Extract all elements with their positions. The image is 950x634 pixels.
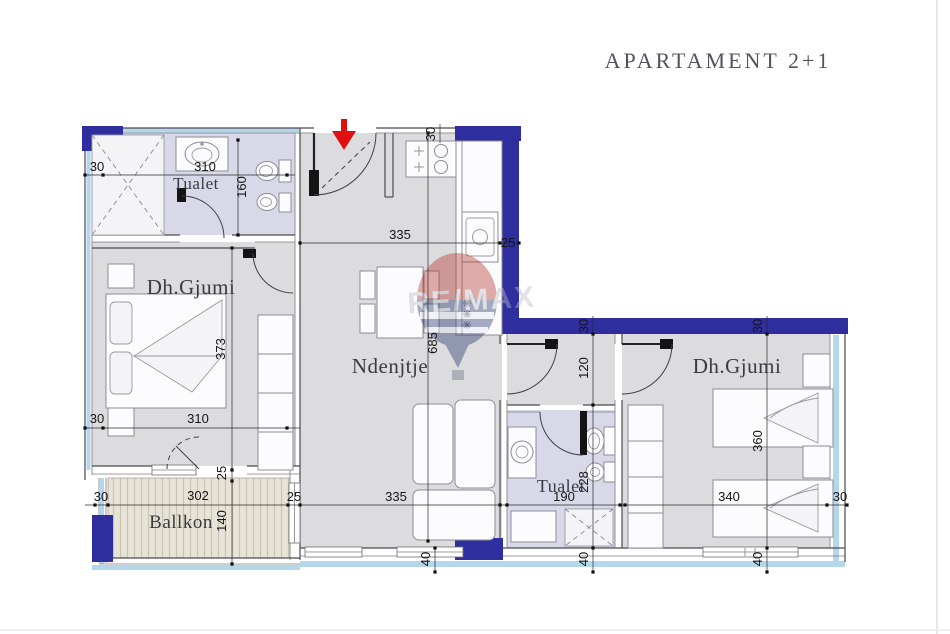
dim-kitchen-width: 335 <box>389 227 411 242</box>
dim-bedleft-height: 373 <box>213 338 228 360</box>
window-living-bottom-1 <box>305 547 362 557</box>
dim-bedleft-width: 310 <box>187 411 209 426</box>
dim-kitchen-wall: 25 <box>501 235 515 250</box>
dim-bedright-width: 340 <box>718 489 740 504</box>
watermark-text: RE/MAX <box>407 281 537 321</box>
dim-bath-wall-bottom: 40 <box>576 552 591 566</box>
window-bedroom-left-balcony <box>152 465 196 475</box>
dim-balcony-height: 140 <box>214 510 229 532</box>
dim-entry-wall: 30 <box>423 127 438 141</box>
bath-cabinet <box>511 511 556 542</box>
wardrobe-left <box>258 315 293 470</box>
dim-living-width: 335 <box>385 489 407 504</box>
dim-living-wall-bottom: 40 <box>418 552 433 566</box>
window-band-top <box>123 129 299 133</box>
dim-bedright-wall-bottom: 40 <box>750 552 765 566</box>
dim-tualet-height: 160 <box>234 176 249 198</box>
dim-bedright-wall-right: 30 <box>833 489 847 504</box>
dim-hall-wall-top: 30 <box>576 319 591 333</box>
dim-balcony-width: 302 <box>187 488 209 503</box>
toilet-icon-bottom <box>584 427 615 455</box>
wardrobe-right <box>628 405 663 548</box>
navy-wall-horizontal <box>502 318 848 334</box>
room-label-bedroom-left: Dh.Gjumi <box>147 275 236 299</box>
page-title: APARTAMENT 2+1 <box>605 48 832 73</box>
toilet-icon-top <box>256 160 291 182</box>
navy-wall-balcony-left <box>92 515 113 562</box>
window-band-right <box>833 335 839 561</box>
dim-bedright-height: 360 <box>750 430 765 452</box>
floor-plan-page: RE/MAX 30 310 16 <box>0 0 950 634</box>
room-label-bedroom-right: Dh.Gjumi <box>693 354 782 378</box>
stove-icon <box>406 141 456 177</box>
dim-balcony-wall-left: 30 <box>94 489 108 504</box>
shower-top <box>92 135 164 235</box>
room-label-tualet-top: Tualet <box>173 174 219 193</box>
dim-bedright-wall-top: 30 <box>750 319 765 333</box>
floor-plan-canvas: RE/MAX 30 310 16 <box>0 0 950 634</box>
dim-tualet-wall-left: 30 <box>90 159 104 174</box>
dim-hall-height: 120 <box>576 357 591 379</box>
room-label-balcony: Ballkon <box>149 512 213 533</box>
kitchen-sink-icon <box>462 212 498 262</box>
shower-bottom <box>565 509 613 546</box>
dim-tualet-width: 310 <box>194 159 216 174</box>
window-band-balcony-bottom <box>92 565 300 570</box>
room-label-living: Ndenjtje <box>352 354 428 378</box>
washing-machine-icon <box>508 427 536 478</box>
room-label-tualet-bottom: Tualet <box>537 476 585 496</box>
dim-living-height: 685 <box>425 332 440 354</box>
dim-balcony-wall-top: 25 <box>214 466 229 480</box>
dim-balcony-wall-right: 25 <box>287 489 301 504</box>
dim-bedleft-wall: 30 <box>90 411 104 426</box>
